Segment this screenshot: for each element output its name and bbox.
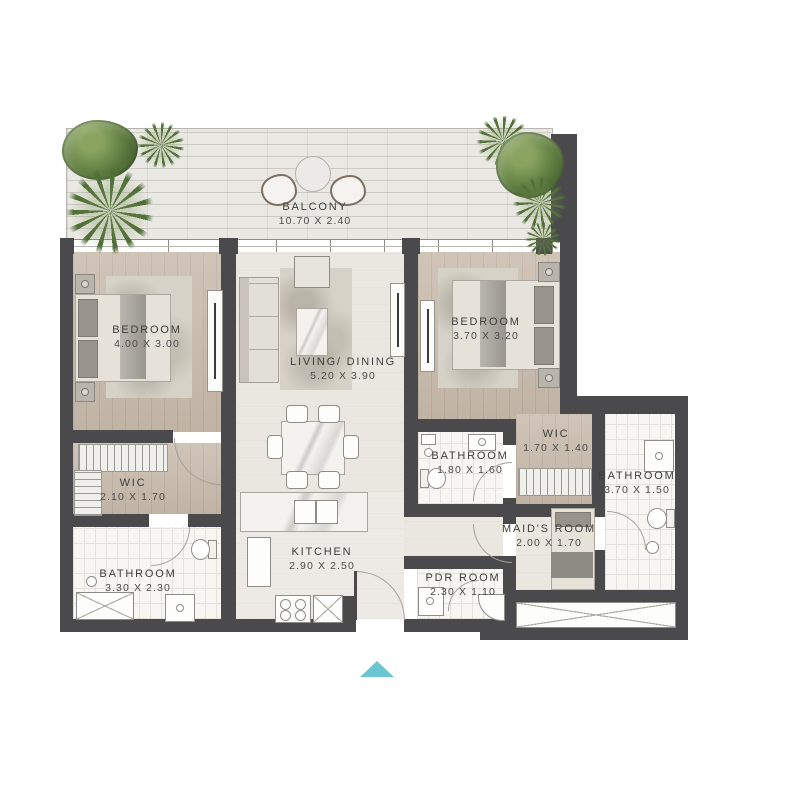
closet-rail-icon — [74, 470, 102, 516]
wall — [404, 419, 418, 517]
entrance-arrow-icon — [360, 661, 394, 677]
pillow-icon — [78, 340, 98, 378]
palm-plant-icon — [524, 222, 562, 256]
closet-rail-icon — [518, 468, 592, 496]
wall — [60, 238, 74, 254]
bathroom-fixture-icon — [86, 576, 97, 587]
wall — [60, 240, 73, 632]
dining-chair-icon — [318, 405, 340, 423]
fridge-icon — [247, 537, 271, 587]
bathroom-fixture-icon — [421, 434, 436, 445]
room-label-bedroom-1: BEDROOM 4.00 X 3.00 — [112, 324, 181, 351]
room-label-bedroom-2: BEDROOM 3.70 X 3.20 — [451, 316, 520, 343]
dining-chair-icon — [286, 471, 308, 489]
entry-door-leaf — [354, 571, 357, 620]
wall — [560, 240, 577, 400]
nightstand-icon — [538, 262, 560, 282]
room-label-wic-2: WIC 1.70 X 1.40 — [523, 428, 589, 455]
wall — [221, 444, 236, 619]
dining-chair-icon — [267, 435, 283, 459]
wall — [675, 408, 688, 640]
kitchen-sink-icon — [316, 500, 338, 524]
pillow-icon — [534, 327, 554, 365]
room-label-pdr-room: PDR ROOM 2.30 X 1.10 — [426, 572, 501, 599]
room-label-living-dining: LIVING/ DINING 5.20 X 3.90 — [290, 356, 396, 383]
toilet-icon — [191, 539, 210, 560]
room-label-bathroom-2: BATHROOM 1.80 X 1.60 — [431, 450, 508, 477]
tv-unit-icon — [420, 300, 435, 372]
wall — [560, 396, 688, 414]
room-label-balcony: BALCONY 10.70 X 2.40 — [279, 201, 352, 228]
sink-faucet-icon — [478, 438, 486, 446]
shower-drain-icon — [176, 604, 184, 612]
stove-icon — [275, 595, 311, 623]
kitchen-sink-icon — [294, 500, 316, 524]
nightstand-icon — [75, 382, 95, 402]
blanket-icon — [551, 552, 593, 578]
toilet-icon — [647, 508, 667, 529]
wall — [188, 514, 221, 527]
wall — [221, 252, 236, 444]
wall — [60, 619, 356, 632]
wall — [404, 419, 516, 432]
room-label-bathroom-1: BATHROOM 3.30 X 2.30 — [99, 568, 176, 595]
toilet-icon — [666, 509, 675, 528]
room-label-wic-1: WIC 2.10 X 1.70 — [100, 477, 166, 504]
closet-rail-icon — [78, 444, 168, 472]
coffee-table-icon — [296, 308, 328, 356]
dining-chair-icon — [318, 471, 340, 489]
wall — [404, 504, 516, 517]
service-shaft-x — [76, 592, 134, 620]
palm-plant-icon — [64, 168, 156, 254]
dining-chair-icon — [286, 405, 308, 423]
sofa-icon — [239, 277, 279, 383]
dishwasher-icon — [313, 595, 343, 623]
dining-table-icon — [281, 421, 345, 475]
pillow-icon — [534, 286, 554, 324]
floor-plan: BALCONY 10.70 X 2.40 BEDROOM 4.00 X 3.00… — [0, 0, 800, 800]
sink-faucet-icon — [655, 452, 663, 460]
wall — [503, 419, 516, 445]
room-label-kitchen: KITCHEN 2.90 X 2.50 — [289, 546, 355, 573]
nightstand-icon — [75, 274, 95, 294]
dining-chair-icon — [343, 435, 359, 459]
floor-drain-icon — [646, 541, 659, 554]
palm-plant-icon — [136, 122, 186, 168]
pillow-icon — [78, 299, 98, 337]
wall — [503, 504, 516, 524]
service-shaft-x — [516, 602, 676, 628]
room-label-maids-room: MAID'S ROOM 2.00 X 1.70 — [502, 523, 596, 550]
balcony-table-icon — [295, 156, 331, 192]
room-label-bathroom-3: BATHROOM 3.70 X 1.50 — [598, 470, 675, 497]
armchair-icon — [294, 256, 330, 288]
tv-unit-icon — [207, 290, 223, 392]
wall — [73, 430, 173, 443]
tv-unit-icon — [390, 283, 405, 357]
wall — [404, 252, 418, 432]
nightstand-icon — [538, 368, 560, 388]
